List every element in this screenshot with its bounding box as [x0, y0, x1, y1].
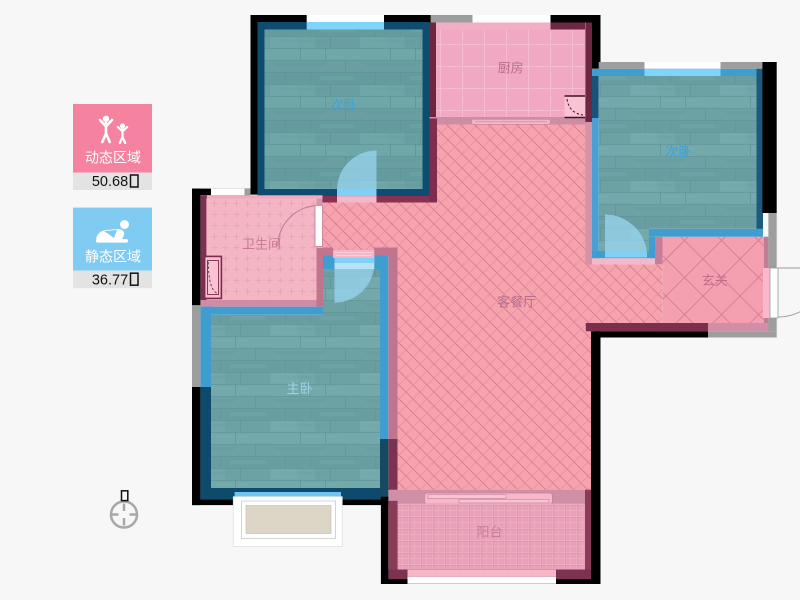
svg-text:主卧: 主卧	[286, 381, 312, 396]
svg-text:36.77: 36.77	[92, 272, 128, 288]
svg-text:50.68: 50.68	[92, 174, 128, 190]
svg-text:卫生间: 卫生间	[242, 237, 281, 252]
svg-text:客餐厅: 客餐厅	[497, 295, 536, 310]
svg-text:玄关: 玄关	[702, 273, 728, 288]
svg-text:次卧: 次卧	[665, 145, 691, 160]
svg-text:静态区域: 静态区域	[85, 249, 141, 265]
svg-text:阳台: 阳台	[476, 525, 502, 540]
svg-text:次卧: 次卧	[330, 98, 356, 113]
svg-text:动态区域: 动态区域	[85, 150, 141, 166]
svg-text:厨房: 厨房	[498, 61, 524, 76]
